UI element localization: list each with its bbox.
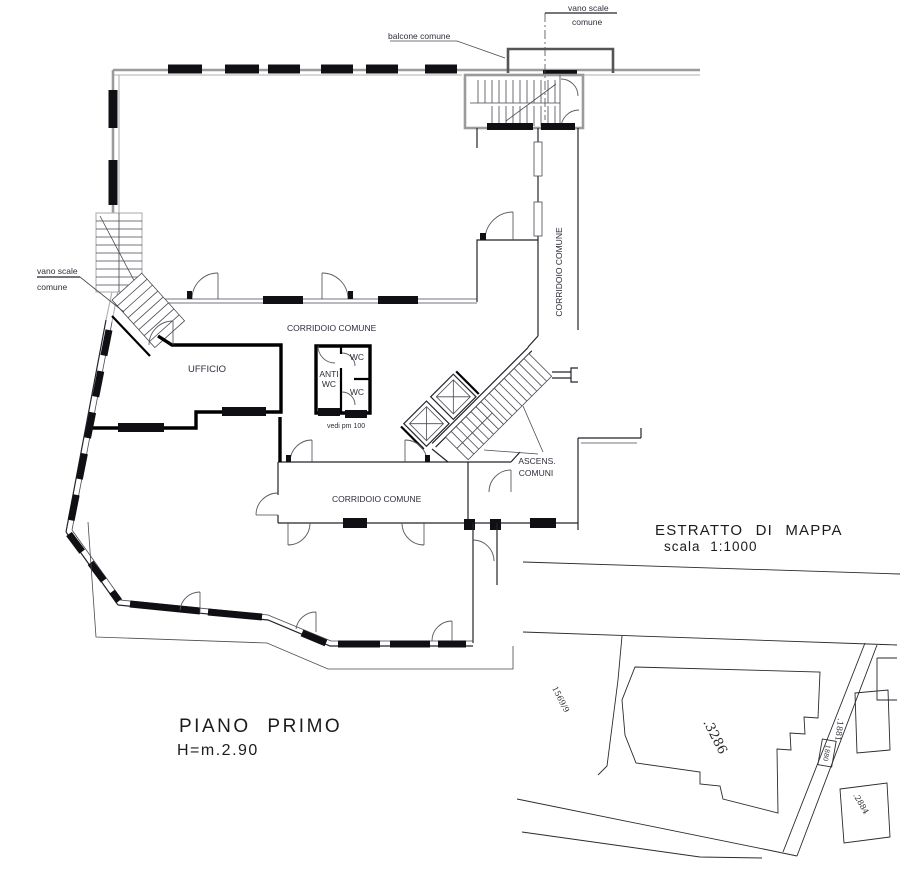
lower-unit-inner-walls <box>72 322 473 641</box>
corridor-window-2 <box>534 202 542 236</box>
note-label: vedi pm 100 <box>327 423 365 430</box>
elevators-label-line1: ASCENS. <box>518 456 555 466</box>
anti-wc-line2: WC <box>322 379 336 389</box>
title-block: PIANO PRIMO H=m.2.90 <box>177 716 342 759</box>
parcel-2884-group: .2884 <box>851 792 870 816</box>
corridor-notch <box>571 368 578 382</box>
map-scale: scala 1:1000 <box>664 539 758 554</box>
corner-windows <box>69 534 119 601</box>
height-note: H=m.2.90 <box>177 742 259 759</box>
hall-bottom-wall <box>150 299 477 303</box>
map-parcel-boundary <box>598 636 622 775</box>
parcel-1881-label: .1881 <box>833 718 845 742</box>
hall-door-posts <box>187 233 486 299</box>
parcel-3286-label: .3286 <box>699 717 729 757</box>
map-parcel-1880-box: 1880 <box>818 739 836 767</box>
ufficio-room <box>88 321 281 432</box>
map-extract: 1880 <box>517 562 900 858</box>
wc-bottom-label: WC <box>350 387 364 397</box>
elevator-2-cross <box>409 407 443 441</box>
parcel-1881-group: .1881 <box>833 718 845 742</box>
hall-door-leaves <box>218 212 513 299</box>
lower-windows-2 <box>302 633 466 644</box>
hall-door-arcs <box>192 212 513 299</box>
floorplan-page: 1880 balcone comune vano scale comune va… <box>0 0 921 879</box>
lower-unit-right-door-arc <box>473 540 494 561</box>
map-title: ESTRATTO DI MAPPA <box>655 522 843 539</box>
lower-unit-outer-walls <box>66 320 473 646</box>
map-parcel-1881 <box>855 690 890 753</box>
office-label: UFFICIO <box>188 364 226 375</box>
lower-corridor-bars <box>286 455 556 530</box>
elevators-label-line2: COMUNI <box>519 468 553 478</box>
lower-unit-right-walls <box>473 523 497 643</box>
parcel-2884-label: .2884 <box>851 792 870 816</box>
anti-wc-line1: ANTI <box>319 369 338 379</box>
outer-walls <box>106 70 700 322</box>
map-building-right-edge <box>877 658 897 700</box>
balcony-label: balcone comune <box>388 31 451 41</box>
parcel-1569-group: 1569/9 <box>550 685 571 714</box>
lower-unit <box>66 320 513 669</box>
parcel-1569-label: 1569/9 <box>550 685 571 714</box>
main-hall <box>150 128 538 304</box>
wc-top-label: WC <box>350 352 364 362</box>
hall-corridor-label: CORRIDOIO COMUNE <box>287 323 377 333</box>
lower-windows-1 <box>130 604 262 617</box>
stairwell-top-outline <box>465 75 583 128</box>
map-road-bottom <box>517 799 797 858</box>
stair-elevator-cluster <box>401 323 571 492</box>
parcel-1880-label: 1880 <box>821 744 832 762</box>
page-title: PIANO PRIMO <box>179 716 342 737</box>
map-road-top <box>523 562 900 645</box>
balcony-leader <box>390 41 505 58</box>
parcel-3286-group: .3286 <box>699 717 729 757</box>
vano-scale-top-line2: comune <box>572 17 603 27</box>
vano-scale-left-line1: vano scale <box>37 266 78 276</box>
vano-scale-left-line2: comune <box>37 282 68 292</box>
stairwell-door-bars <box>487 123 575 130</box>
lower-corridor-label: CORRIDOIO COMUNE <box>332 494 422 504</box>
hall-step-wall <box>477 128 538 302</box>
corridor-window-1 <box>534 142 542 176</box>
vano-scale-top-line1: vano scale <box>568 3 609 13</box>
cluster-door-arc <box>489 470 511 492</box>
elevator-1-cross <box>436 380 470 414</box>
right-corridor-label: CORRIDOIO COMUNE <box>554 227 564 317</box>
floor-plan-drawing: 1880 balcone comune vano scale comune va… <box>0 0 921 879</box>
